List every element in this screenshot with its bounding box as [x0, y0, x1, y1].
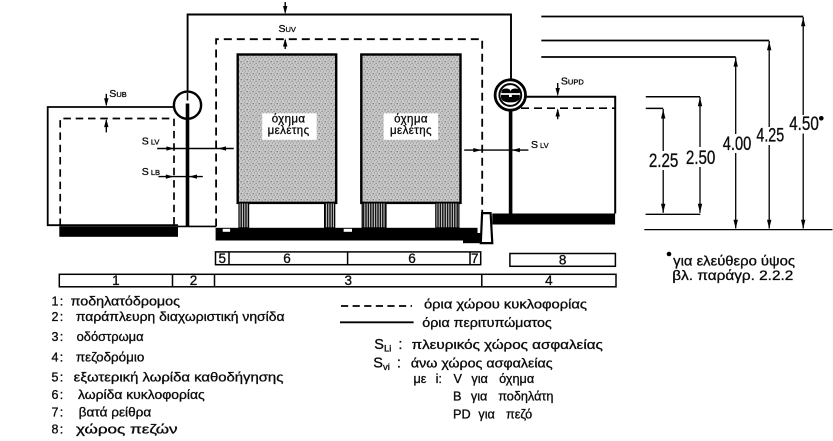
svg-text:2.50: 2.50 [686, 148, 716, 169]
svg-text:SUPD: SUPD [561, 75, 584, 87]
svg-text:πεζοδρόμιο: πεζοδρόμιο [76, 351, 144, 365]
svg-text:3:: 3: [51, 330, 64, 344]
svg-text:3: 3 [344, 273, 352, 288]
svg-text:5: 5 [219, 251, 227, 266]
svg-text:όχημα: όχημα [272, 114, 306, 126]
svg-text:SUV: SUV [279, 23, 296, 35]
svg-text:7:: 7: [51, 406, 64, 420]
svg-text:για ελεύθερο ύψος: για ελεύθερο ύψος [673, 252, 795, 268]
svg-text:όρια περιτυπώματος: όρια περιτυπώματος [422, 316, 552, 330]
svg-text:5:: 5: [51, 371, 64, 385]
svg-text:παράπλευρη διαχωριστική νησίδα: παράπλευρη διαχωριστική νησίδα [76, 310, 285, 324]
svg-text:χώρος πεζών: χώρος πεζών [76, 423, 178, 437]
svg-text:εξωτερική λωρίδα καθοδήγησης: εξωτερική λωρίδα καθοδήγησης [74, 371, 284, 385]
svg-text:SUB: SUB [109, 88, 126, 100]
svg-text:SLV: SLV [531, 139, 549, 151]
svg-text:6:: 6: [51, 388, 64, 402]
svg-text:7: 7 [471, 251, 479, 266]
svg-text:άνω χώρος ασφαλείας: άνω χώρος ασφαλείας [411, 356, 553, 370]
svg-text:4.50: 4.50 [789, 114, 819, 135]
svg-text:4.00: 4.00 [723, 134, 752, 155]
svg-text:πλευρικός χώρος ασφαλείας: πλευρικός χώρος ασφαλείας [412, 338, 603, 352]
svg-text:8:: 8: [51, 423, 64, 437]
svg-text:SLV: SLV [142, 136, 160, 148]
svg-text:4:: 4: [51, 351, 64, 365]
svg-text:2.25: 2.25 [649, 151, 679, 172]
svg-text:ποδηλατόδρομος: ποδηλατόδρομος [71, 295, 180, 309]
svg-text:6: 6 [408, 251, 416, 266]
svg-text:οδόστρωμα: οδόστρωμα [77, 330, 144, 344]
svg-text:μελέτης: μελέτης [390, 125, 432, 137]
svg-text:λωρίδα κυκλοφορίας: λωρίδα κυκλοφορίας [78, 388, 205, 402]
svg-text:SLB: SLB [142, 166, 160, 178]
svg-text:PDγιαπεζό: PDγιαπεζό [453, 407, 532, 421]
svg-text:όχημα: όχημα [394, 114, 428, 126]
svg-text:βατά ρείθρα: βατά ρείθρα [79, 406, 152, 420]
svg-text:όρια χώρου κυκλοφορίας: όρια χώρου κυκλοφορίας [424, 298, 587, 312]
svg-text:μελέτης: μελέτης [268, 125, 310, 137]
svg-text:6: 6 [283, 251, 291, 266]
svg-text:βλ. παράγρ. 2.2.2: βλ. παράγρ. 2.2.2 [672, 267, 793, 283]
svg-text:4: 4 [545, 273, 553, 288]
svg-text:8: 8 [559, 253, 567, 268]
svg-text:4.25: 4.25 [756, 126, 784, 147]
svg-text:1: 1 [112, 273, 120, 288]
svg-text:2: 2 [190, 273, 198, 288]
svg-text:1:: 1: [51, 295, 64, 309]
svg-text:2:: 2: [51, 310, 64, 324]
